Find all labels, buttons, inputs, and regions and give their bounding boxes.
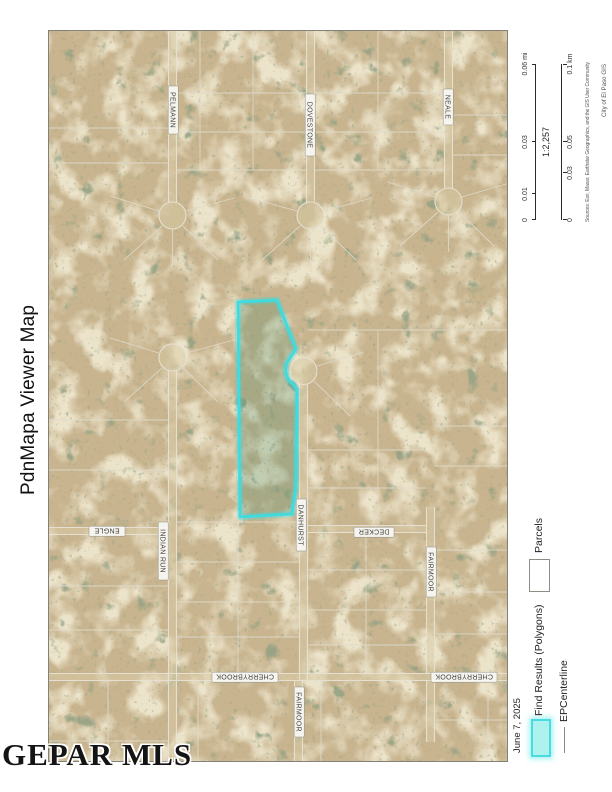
svg-text:PELMANN: PELMANN bbox=[168, 92, 175, 128]
miles-tick-label: 0.06 mi bbox=[522, 53, 529, 76]
km-tick-label: 0.05 bbox=[567, 135, 574, 149]
km-scale-bar bbox=[561, 64, 562, 220]
street-label-fairmoor-south: FAIRMOOR bbox=[294, 687, 304, 737]
map-canvas: PELMANN DOVESTONE NEALE INDIAN RUN DANHU… bbox=[48, 30, 508, 762]
street-label-cherrybrook-east: CHERRYBROOK bbox=[431, 672, 497, 682]
street-label-cherrybrook-west: CHERRYBROOK bbox=[212, 672, 278, 682]
highlight-polygon bbox=[238, 300, 297, 517]
legend-block: June 7, 2025 Find Results (Polygons) Par… bbox=[512, 500, 590, 762]
watermark-logo: GEPAR MLS bbox=[2, 737, 192, 773]
find-results-label: Find Results (Polygons) bbox=[533, 605, 545, 716]
svg-text:CHERRYBROOK: CHERRYBROOK bbox=[435, 672, 493, 679]
svg-text:NEALE: NEALE bbox=[443, 95, 450, 119]
miles-tick-label: 0.03 bbox=[522, 135, 529, 149]
km-tick-label: 0.1 km bbox=[567, 53, 574, 74]
svg-text:DECKER: DECKER bbox=[359, 527, 390, 534]
aerial-map: PELMANN DOVESTONE NEALE INDIAN RUN DANHU… bbox=[48, 30, 508, 762]
svg-text:DOVESTONE: DOVESTONE bbox=[305, 102, 312, 149]
parcels-label: Parcels bbox=[533, 518, 545, 553]
parcels-swatch bbox=[529, 559, 550, 592]
svg-text:INDIAN RUN: INDIAN RUN bbox=[158, 529, 165, 573]
street-label-engle: ENGLE bbox=[89, 526, 125, 536]
street-label-decker: DECKER bbox=[354, 527, 394, 537]
km-tick-label: 0 bbox=[567, 218, 574, 222]
credit-text: City of El Paso GIS bbox=[601, 64, 608, 224]
epcenterline-label: EPCenterline bbox=[558, 660, 570, 722]
miles-tick-label: 0.01 bbox=[522, 187, 529, 201]
svg-text:DANHURST: DANHURST bbox=[296, 504, 303, 546]
street-label-fairmoor-east: FAIRMOOR bbox=[426, 547, 436, 597]
scale-ratio: 1:2,257 bbox=[541, 64, 551, 220]
street-label-neale: NEALE bbox=[443, 89, 453, 125]
attribution-text: Sources: Esri, Maxar, Earthstar Geograph… bbox=[585, 46, 591, 222]
svg-text:FAIRMOOR: FAIRMOOR bbox=[426, 552, 433, 592]
miles-scale-bar bbox=[535, 64, 536, 220]
svg-text:CHERRYBROOK: CHERRYBROOK bbox=[216, 672, 274, 679]
svg-text:FAIRMOOR: FAIRMOOR bbox=[294, 692, 301, 732]
epcenterline-swatch bbox=[564, 727, 565, 753]
street-label-indian-run: INDIAN RUN bbox=[158, 522, 168, 580]
page-title: PdnMapa Viewer Map bbox=[18, 295, 48, 495]
scalebar-block: 0 0.01 0.03 0.06 mi 1:2,257 0 0.03 0.05 … bbox=[516, 48, 612, 224]
map-date: June 7, 2025 bbox=[512, 698, 523, 753]
map-document-page: PELMANN DOVESTONE NEALE INDIAN RUN DANHU… bbox=[0, 0, 612, 792]
street-label-dovestone: DOVESTONE bbox=[305, 94, 315, 156]
street-label-pelmann: PELMANN bbox=[168, 86, 178, 134]
street-label-danhurst: DANHURST bbox=[296, 499, 306, 551]
km-tick-label: 0.03 bbox=[567, 166, 574, 180]
svg-text:ENGLE: ENGLE bbox=[94, 526, 119, 533]
miles-tick-label: 0 bbox=[522, 218, 529, 222]
find-results-swatch bbox=[531, 719, 551, 757]
